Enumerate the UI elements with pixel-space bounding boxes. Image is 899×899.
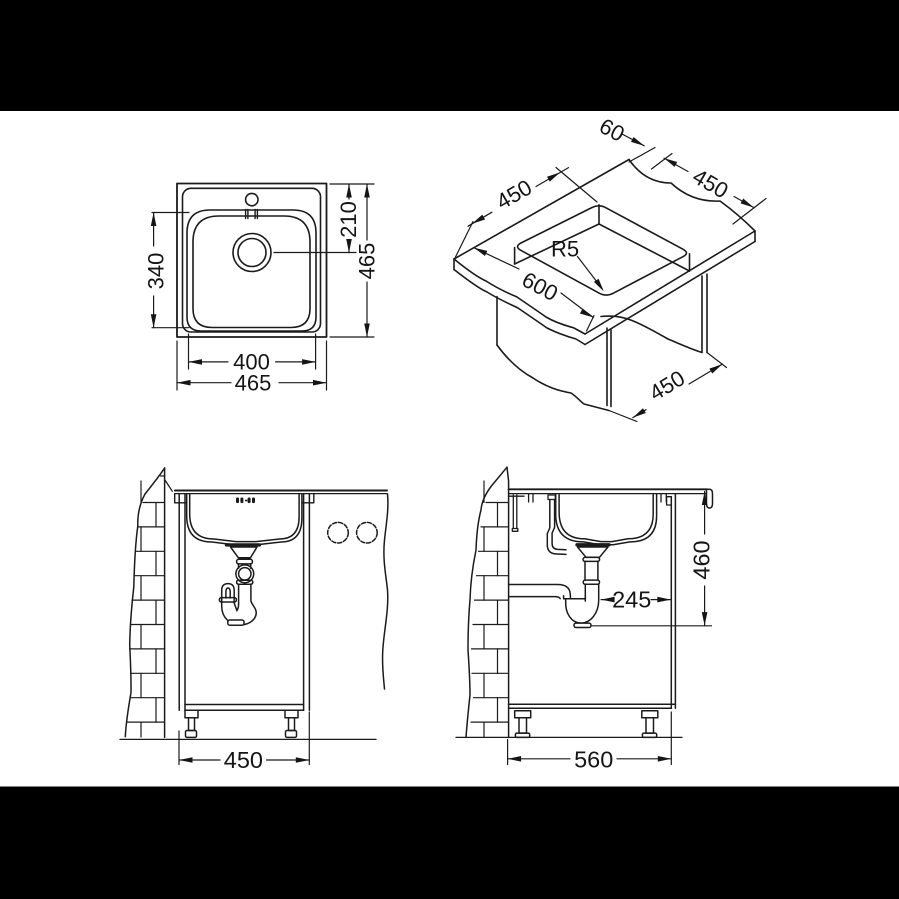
svg-text:340: 340 xyxy=(143,253,168,290)
svg-text:210: 210 xyxy=(336,201,361,238)
svg-text:465: 465 xyxy=(355,243,380,280)
svg-text:R5: R5 xyxy=(551,237,579,262)
svg-text:465: 465 xyxy=(235,371,272,396)
svg-text:245: 245 xyxy=(612,587,651,613)
svg-text:450: 450 xyxy=(224,747,263,773)
svg-text:560: 560 xyxy=(574,747,613,773)
svg-text:460: 460 xyxy=(689,540,715,579)
